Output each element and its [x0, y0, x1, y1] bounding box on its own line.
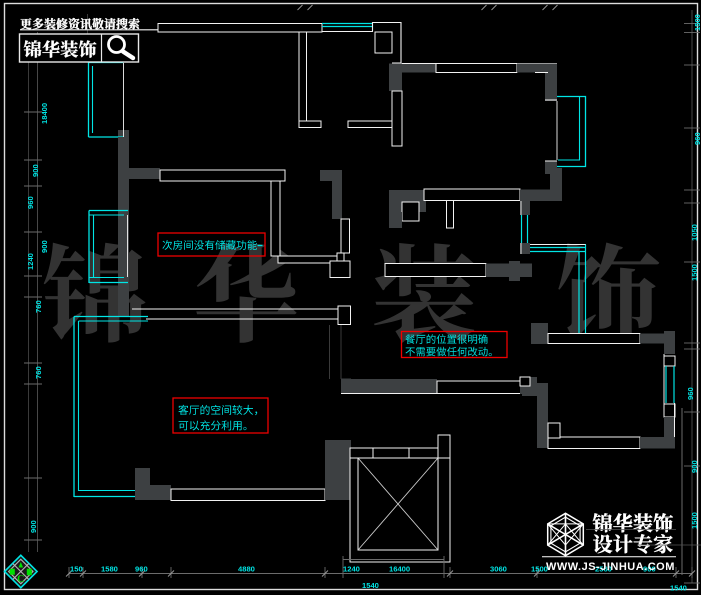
- svg-text:1240: 1240: [343, 565, 360, 574]
- svg-text:960: 960: [693, 132, 701, 145]
- svg-text:960: 960: [686, 387, 695, 400]
- svg-text:WWW.JS-JINHUA.COM: WWW.JS-JINHUA.COM: [546, 561, 675, 573]
- svg-text:900: 900: [29, 520, 38, 533]
- svg-text:760: 760: [34, 300, 43, 313]
- svg-text:3060: 3060: [490, 565, 507, 574]
- svg-text:1540: 1540: [362, 581, 379, 590]
- svg-text:760: 760: [34, 366, 43, 379]
- svg-text:1050: 1050: [690, 224, 699, 241]
- svg-text:900: 900: [690, 460, 699, 473]
- svg-text:1580: 1580: [101, 565, 118, 574]
- svg-text:18400: 18400: [40, 103, 49, 124]
- svg-text:1540: 1540: [670, 584, 687, 593]
- svg-text:1240: 1240: [26, 253, 35, 270]
- svg-text:1500: 1500: [690, 264, 699, 281]
- svg-text:1500: 1500: [690, 512, 699, 529]
- svg-text:960: 960: [26, 196, 35, 209]
- svg-text:900: 900: [31, 164, 40, 177]
- svg-text:4880: 4880: [238, 565, 255, 574]
- svg-text:900: 900: [40, 240, 49, 253]
- svg-text:1500: 1500: [693, 14, 701, 31]
- svg-text:150: 150: [70, 565, 83, 574]
- svg-text:C: C: [17, 574, 24, 585]
- svg-text:16400: 16400: [389, 565, 410, 574]
- svg-text:960: 960: [135, 565, 148, 574]
